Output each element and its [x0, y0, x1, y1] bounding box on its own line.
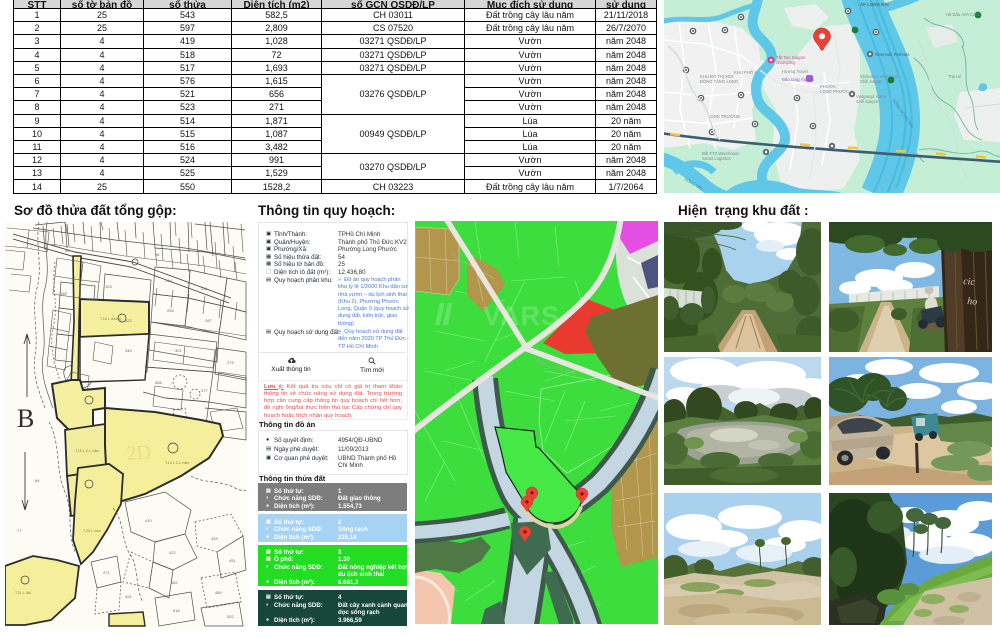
svg-text:123: 123 — [105, 284, 112, 289]
svg-text:Chill Saigon: Chill Saigon — [860, 79, 883, 84]
svg-text:214: 214 — [165, 278, 172, 283]
svg-text:B: B — [17, 404, 34, 433]
svg-text:cic: cic — [963, 276, 976, 288]
svg-text:ẤP LONG ĐẠI: ẤP LONG ĐẠI — [860, 2, 889, 7]
svg-text:Hồ Dầu Ánh Cát 2: Hồ Dầu Ánh Cát 2 — [946, 12, 981, 17]
svg-text:LONG PHƯỚC: LONG PHƯỚC — [820, 89, 849, 94]
svg-text:T.19 L.C.L.năm: T.19 L.C.L.năm — [165, 461, 189, 465]
svg-text:422: 422 — [169, 550, 176, 555]
svg-text:491: 491 — [125, 594, 132, 599]
svg-text:T.16 L.đường: T.16 L.đường — [100, 317, 122, 321]
svg-text:471: 471 — [103, 570, 110, 575]
svg-text:Chill Saigon: Chill Saigon — [856, 99, 879, 104]
svg-text:ho: ho — [967, 296, 978, 308]
svg-text:Riverside Retreats: Riverside Retreats — [875, 52, 909, 57]
svg-text:KHU PHỐ 4: KHU PHỐ 4 — [734, 70, 757, 75]
svg-text:256: 256 — [167, 308, 174, 313]
svg-text:340: 340 — [125, 348, 132, 353]
svg-text:462: 462 — [171, 580, 178, 585]
svg-text:2D: 2D — [126, 441, 152, 465]
svg-text:64: 64 — [35, 478, 40, 483]
svg-text:Hương Travel: Hương Travel — [782, 69, 808, 74]
svg-text:433: 433 — [211, 536, 218, 541]
svg-text:287: 287 — [205, 318, 212, 323]
svg-text:275: 275 — [227, 360, 234, 365]
svg-text:410: 410 — [145, 518, 152, 523]
svg-text:Glamping: Glamping — [776, 60, 795, 65]
svg-text:377: 377 — [201, 388, 208, 393]
svg-text:VARS: VARS — [483, 301, 560, 331]
svg-text:88: 88 — [65, 248, 70, 253]
svg-text:480: 480 — [215, 590, 222, 595]
svg-text:Bảo tàng Áo Dài: Bảo tàng Áo Dài — [782, 77, 814, 82]
svg-text:77: 77 — [17, 528, 22, 533]
svg-text:T.20 L.màu: T.20 L.màu — [83, 529, 101, 533]
svg-text:Trại Hè: Trại Hè — [948, 74, 962, 79]
svg-text:155: 155 — [60, 291, 67, 296]
svg-text:322: 322 — [125, 318, 132, 323]
svg-text:366: 366 — [155, 380, 162, 385]
svg-text:301: 301 — [175, 348, 182, 353]
svg-text:515: 515 — [173, 608, 180, 613]
svg-text:Smart Logistics: Smart Logistics — [702, 156, 731, 161]
svg-text:T.21 L.đất: T.21 L.đất — [15, 591, 31, 595]
svg-text:502: 502 — [227, 614, 234, 619]
svg-text:231: 231 — [201, 286, 208, 291]
svg-text:ĐÔNG TĂNG LONG: ĐÔNG TĂNG LONG — [700, 79, 738, 84]
svg-text:451: 451 — [229, 558, 236, 563]
svg-text:LONG TRƯỜNG: LONG TRƯỜNG — [708, 114, 740, 119]
svg-text:T.18 L.C.L.năm: T.18 L.C.L.năm — [75, 449, 99, 453]
svg-text:96: 96 — [155, 252, 160, 257]
